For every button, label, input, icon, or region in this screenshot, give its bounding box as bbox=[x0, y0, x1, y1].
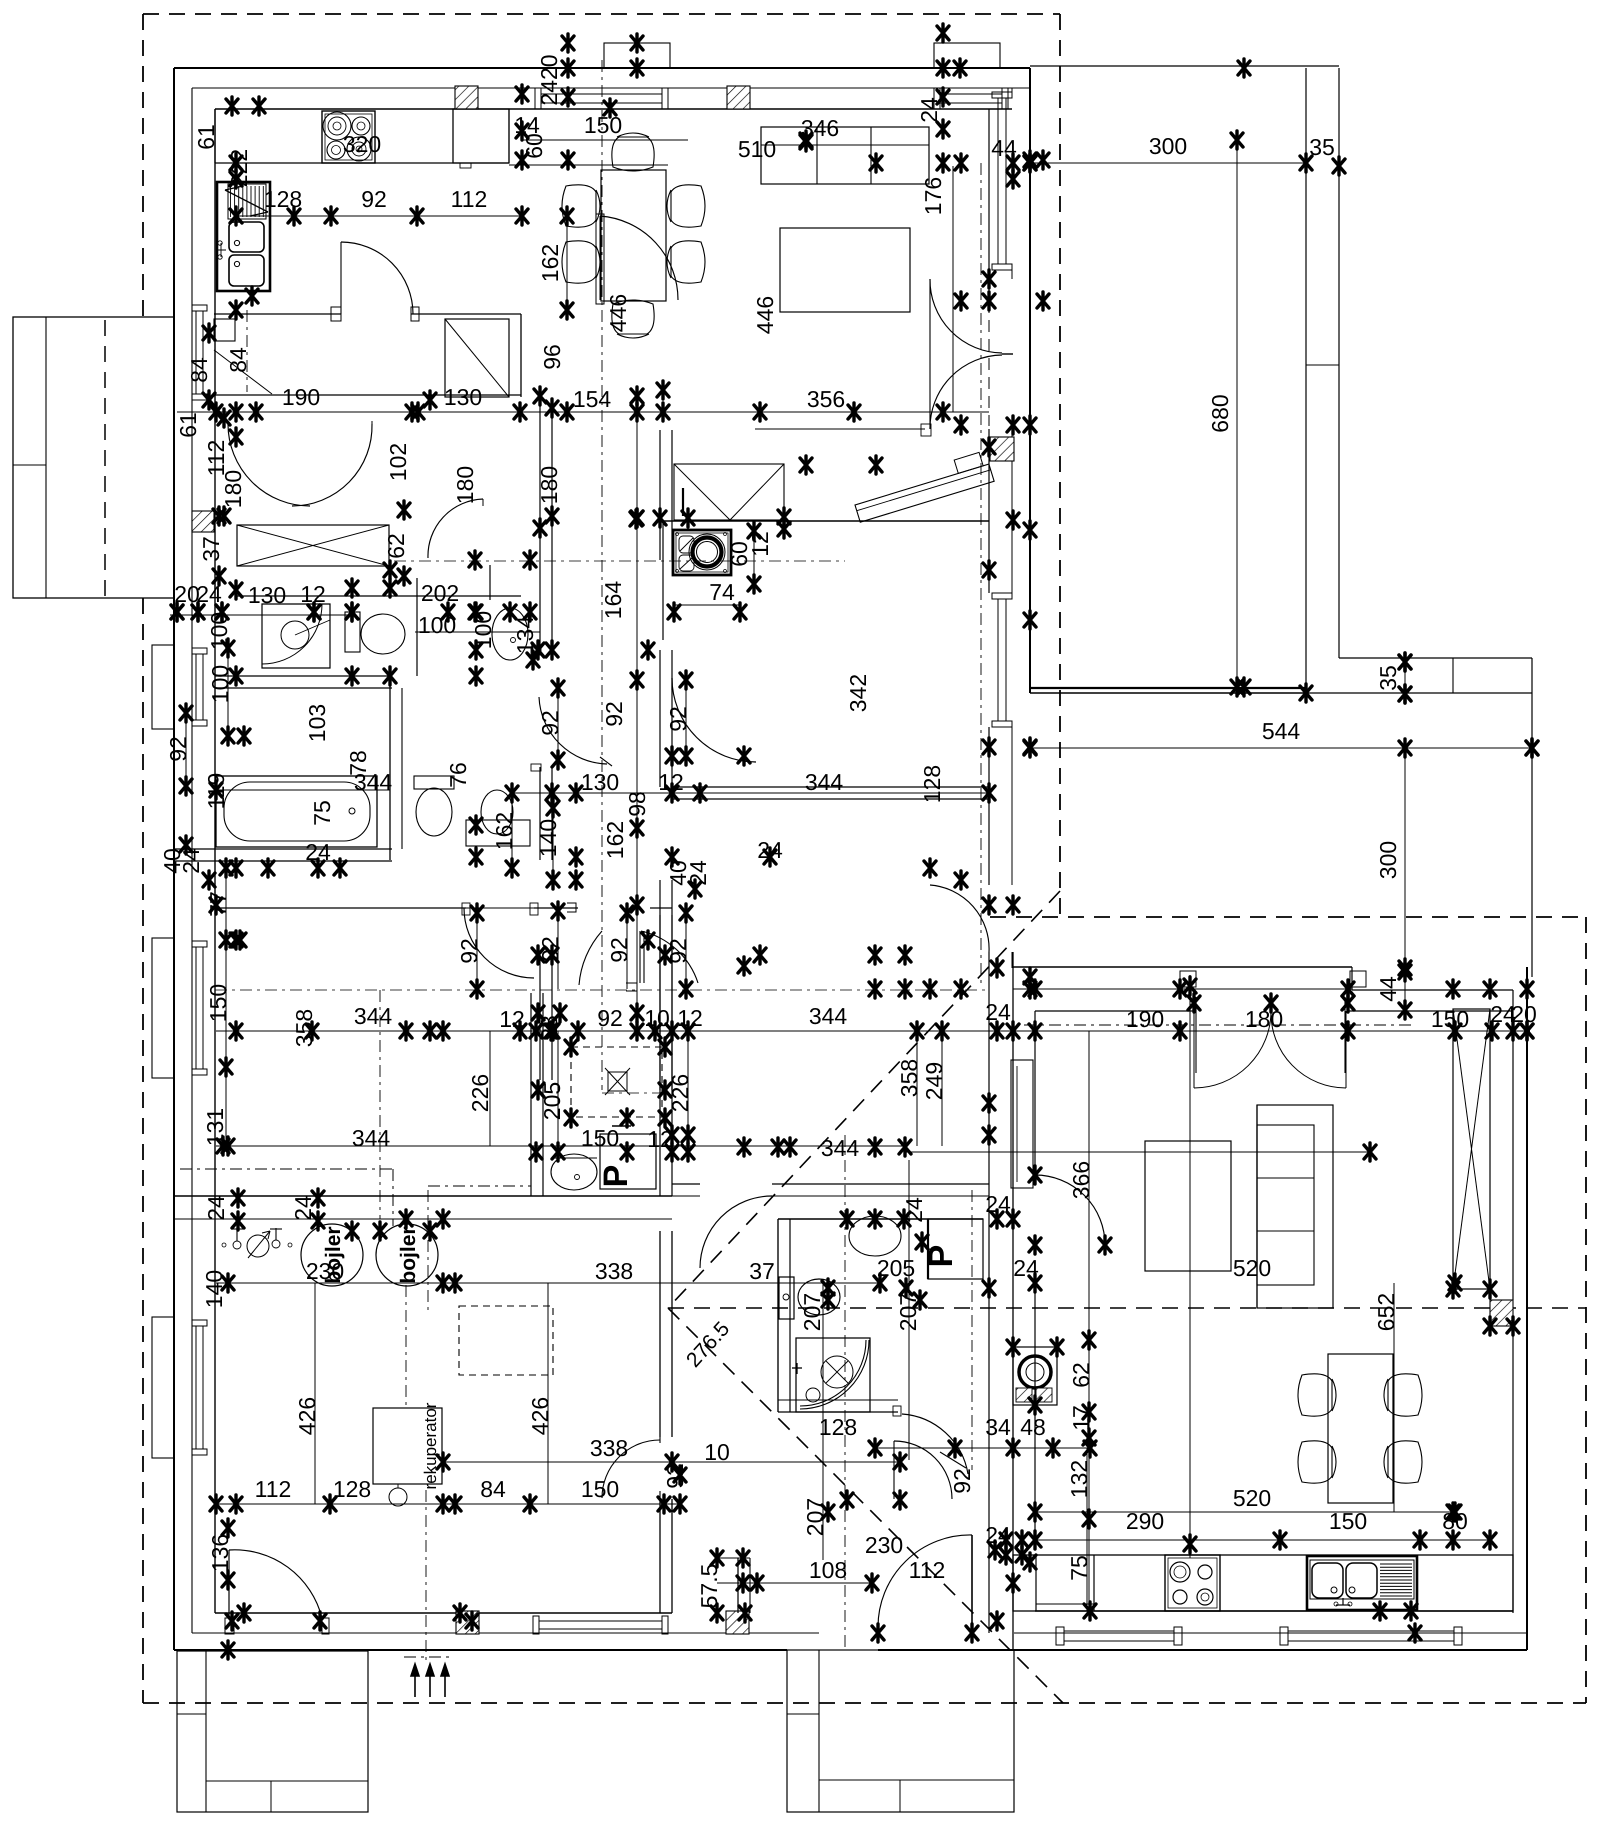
svg-text:154: 154 bbox=[573, 386, 612, 412]
svg-text:92: 92 bbox=[597, 1005, 623, 1031]
svg-text:140: 140 bbox=[535, 819, 561, 857]
svg-text:344: 344 bbox=[805, 769, 844, 795]
svg-text:134: 134 bbox=[512, 616, 538, 655]
svg-text:205: 205 bbox=[539, 1082, 565, 1120]
svg-text:230: 230 bbox=[306, 1258, 344, 1284]
svg-text:84: 84 bbox=[186, 357, 212, 383]
svg-text:150: 150 bbox=[581, 1125, 619, 1151]
svg-text:652: 652 bbox=[1373, 1293, 1399, 1331]
svg-text:103: 103 bbox=[304, 704, 330, 742]
svg-text:338: 338 bbox=[590, 1435, 628, 1461]
svg-text:136: 136 bbox=[207, 1534, 233, 1572]
svg-text:12: 12 bbox=[499, 1006, 525, 1032]
svg-text:680: 680 bbox=[1207, 394, 1233, 432]
svg-text:176: 176 bbox=[920, 177, 946, 215]
svg-text:344: 344 bbox=[354, 769, 393, 795]
svg-text:510: 510 bbox=[738, 136, 776, 162]
svg-text:128: 128 bbox=[264, 186, 302, 212]
svg-text:150: 150 bbox=[1431, 1006, 1469, 1032]
svg-text:164: 164 bbox=[600, 581, 626, 620]
svg-text:426: 426 bbox=[527, 1397, 553, 1435]
svg-text:92: 92 bbox=[665, 706, 691, 732]
svg-text:24: 24 bbox=[290, 1195, 316, 1221]
svg-text:60: 60 bbox=[521, 133, 547, 159]
svg-text:37: 37 bbox=[749, 1258, 775, 1284]
svg-text:75: 75 bbox=[309, 800, 335, 826]
svg-text:112: 112 bbox=[909, 1557, 946, 1583]
svg-text:92: 92 bbox=[949, 1468, 975, 1494]
svg-text:62: 62 bbox=[383, 533, 409, 559]
svg-text:24: 24 bbox=[1013, 1255, 1039, 1281]
svg-text:48: 48 bbox=[1020, 1414, 1046, 1440]
svg-text:108: 108 bbox=[809, 1557, 847, 1583]
svg-text:96: 96 bbox=[539, 344, 565, 370]
svg-text:2420: 2420 bbox=[536, 54, 562, 105]
svg-text:230: 230 bbox=[865, 1532, 903, 1558]
svg-text:61: 61 bbox=[175, 412, 201, 438]
svg-text:338: 338 bbox=[595, 1258, 633, 1284]
svg-text:24: 24 bbox=[985, 1191, 1011, 1217]
svg-text:92: 92 bbox=[537, 710, 563, 736]
svg-text:24: 24 bbox=[916, 97, 942, 123]
svg-text:320: 320 bbox=[343, 131, 381, 157]
svg-text:92: 92 bbox=[361, 186, 387, 212]
svg-text:rekuperator: rekuperator bbox=[421, 1402, 440, 1489]
svg-text:426: 426 bbox=[294, 1397, 320, 1435]
svg-text:P: P bbox=[597, 1165, 635, 1188]
svg-text:446: 446 bbox=[605, 294, 631, 332]
svg-text:74: 74 bbox=[709, 579, 735, 605]
svg-text:150: 150 bbox=[1329, 1508, 1367, 1534]
svg-text:35: 35 bbox=[1375, 665, 1401, 691]
svg-text:358: 358 bbox=[896, 1059, 922, 1097]
svg-text:520: 520 bbox=[1233, 1255, 1271, 1281]
svg-text:150: 150 bbox=[581, 1476, 619, 1502]
svg-text:207: 207 bbox=[799, 1293, 825, 1331]
svg-text:24: 24 bbox=[985, 999, 1011, 1025]
svg-text:92: 92 bbox=[165, 736, 191, 762]
svg-text:162: 162 bbox=[491, 812, 517, 850]
svg-text:190: 190 bbox=[282, 384, 320, 410]
svg-text:342: 342 bbox=[845, 674, 871, 712]
svg-text:37: 37 bbox=[198, 536, 224, 562]
svg-text:150: 150 bbox=[584, 112, 622, 138]
svg-text:75: 75 bbox=[1066, 1555, 1092, 1581]
svg-text:24: 24 bbox=[901, 1197, 927, 1223]
svg-text:17: 17 bbox=[1068, 1405, 1094, 1431]
svg-text:98: 98 bbox=[624, 791, 650, 817]
svg-text:112: 112 bbox=[451, 186, 488, 212]
svg-text:226: 226 bbox=[467, 1074, 493, 1112]
svg-text:290: 290 bbox=[1126, 1508, 1164, 1534]
svg-text:130: 130 bbox=[248, 582, 286, 608]
svg-text:344: 344 bbox=[809, 1003, 848, 1029]
svg-text:180: 180 bbox=[536, 466, 562, 504]
svg-text:130: 130 bbox=[581, 769, 619, 795]
svg-text:132: 132 bbox=[1066, 1460, 1092, 1498]
svg-text:12: 12 bbox=[658, 769, 684, 795]
svg-text:344: 344 bbox=[354, 1003, 393, 1029]
svg-text:61: 61 bbox=[193, 124, 219, 150]
svg-text:226: 226 bbox=[667, 1074, 693, 1112]
svg-text:358: 358 bbox=[291, 1009, 317, 1047]
svg-text:128: 128 bbox=[333, 1476, 371, 1502]
svg-text:446: 446 bbox=[752, 296, 778, 334]
svg-text:300: 300 bbox=[1375, 841, 1401, 879]
svg-text:128: 128 bbox=[819, 1414, 857, 1440]
svg-text:92: 92 bbox=[456, 938, 482, 964]
svg-text:249: 249 bbox=[921, 1062, 947, 1100]
svg-text:24: 24 bbox=[196, 581, 222, 607]
svg-text:150: 150 bbox=[205, 984, 231, 1022]
svg-text:366: 366 bbox=[1068, 1161, 1094, 1199]
svg-text:24: 24 bbox=[757, 837, 783, 863]
svg-text:119: 119 bbox=[203, 773, 229, 810]
svg-text:34: 34 bbox=[985, 1414, 1011, 1440]
svg-text:24: 24 bbox=[305, 839, 331, 865]
svg-text:140: 140 bbox=[201, 1270, 227, 1308]
svg-text:44: 44 bbox=[1375, 976, 1401, 1002]
svg-text:84: 84 bbox=[225, 347, 251, 373]
svg-text:180: 180 bbox=[452, 466, 478, 504]
svg-text:92: 92 bbox=[601, 701, 627, 727]
svg-text:130: 130 bbox=[444, 384, 482, 410]
svg-text:128: 128 bbox=[919, 765, 945, 803]
svg-text:162: 162 bbox=[537, 244, 563, 282]
svg-text:520: 520 bbox=[1233, 1485, 1271, 1511]
svg-text:300: 300 bbox=[1149, 133, 1187, 159]
svg-text:76: 76 bbox=[445, 762, 471, 788]
svg-text:190: 190 bbox=[1126, 1006, 1164, 1032]
svg-text:162: 162 bbox=[602, 821, 628, 859]
svg-text:112: 112 bbox=[255, 1476, 292, 1502]
svg-text:35: 35 bbox=[1309, 134, 1335, 160]
svg-text:84: 84 bbox=[480, 1476, 506, 1502]
svg-text:10: 10 bbox=[704, 1439, 730, 1465]
svg-text:202: 202 bbox=[421, 580, 459, 606]
svg-text:57.5: 57.5 bbox=[696, 1564, 722, 1609]
svg-text:205: 205 bbox=[877, 1255, 915, 1281]
svg-text:180: 180 bbox=[220, 470, 246, 508]
svg-text:344: 344 bbox=[821, 1135, 860, 1161]
svg-text:24: 24 bbox=[203, 1195, 229, 1221]
svg-text:62: 62 bbox=[1068, 1362, 1094, 1388]
svg-text:356: 356 bbox=[807, 386, 845, 412]
svg-text:bojler: bojler bbox=[397, 1226, 420, 1283]
svg-text:344: 344 bbox=[352, 1125, 391, 1151]
svg-text:544: 544 bbox=[1262, 718, 1301, 744]
svg-text:102: 102 bbox=[385, 443, 411, 481]
svg-text:92: 92 bbox=[606, 937, 632, 963]
